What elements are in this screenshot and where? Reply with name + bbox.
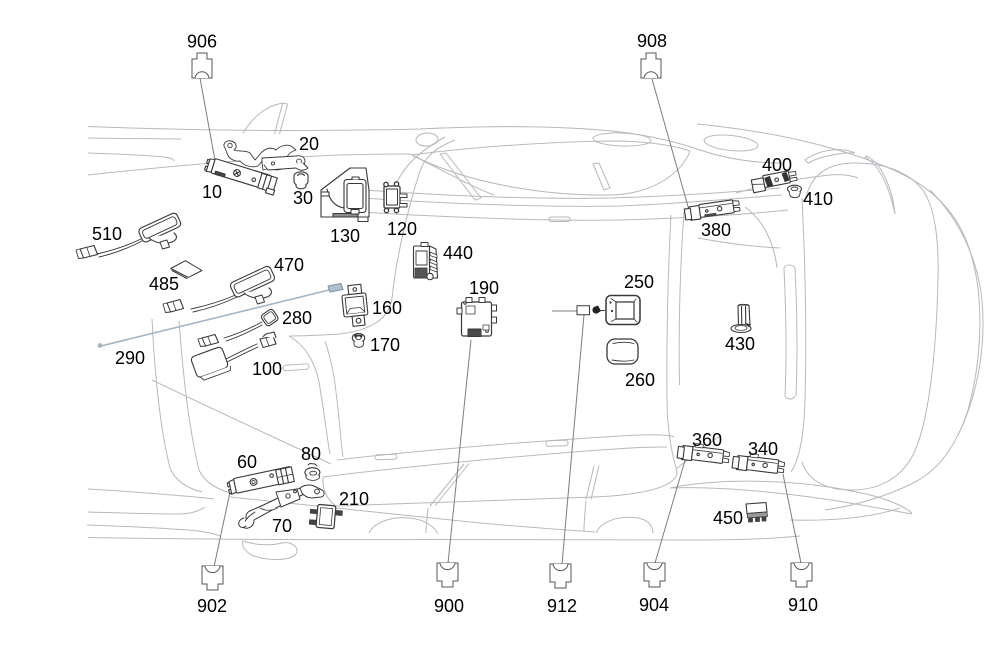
svg-text:510: 510 — [92, 224, 122, 244]
svg-text:130: 130 — [330, 226, 360, 246]
svg-text:410: 410 — [803, 189, 833, 209]
svg-text:30: 30 — [293, 188, 313, 208]
svg-text:912: 912 — [547, 596, 577, 616]
svg-text:440: 440 — [443, 243, 473, 263]
svg-text:250: 250 — [624, 272, 654, 292]
svg-text:60: 60 — [237, 452, 257, 472]
svg-text:906: 906 — [187, 32, 217, 52]
svg-text:280: 280 — [282, 308, 312, 328]
svg-text:908: 908 — [637, 31, 667, 51]
svg-text:902: 902 — [197, 596, 227, 616]
svg-text:904: 904 — [639, 595, 669, 615]
svg-text:190: 190 — [469, 278, 499, 298]
svg-text:210: 210 — [339, 489, 369, 509]
svg-text:170: 170 — [370, 335, 400, 355]
svg-text:120: 120 — [387, 219, 417, 239]
svg-text:360: 360 — [692, 430, 722, 450]
svg-text:485: 485 — [149, 274, 179, 294]
svg-text:380: 380 — [701, 220, 731, 240]
svg-text:340: 340 — [748, 439, 778, 459]
svg-text:470: 470 — [274, 255, 304, 275]
svg-text:290: 290 — [115, 348, 145, 368]
svg-text:20: 20 — [299, 134, 319, 154]
svg-text:100: 100 — [252, 359, 282, 379]
svg-text:10: 10 — [202, 182, 222, 202]
svg-text:80: 80 — [301, 444, 321, 464]
svg-text:400: 400 — [762, 155, 792, 175]
svg-text:430: 430 — [725, 334, 755, 354]
svg-text:160: 160 — [372, 298, 402, 318]
svg-text:900: 900 — [434, 596, 464, 616]
svg-text:450: 450 — [713, 508, 743, 528]
svg-text:910: 910 — [788, 595, 818, 615]
svg-text:70: 70 — [272, 516, 292, 536]
svg-text:260: 260 — [625, 370, 655, 390]
